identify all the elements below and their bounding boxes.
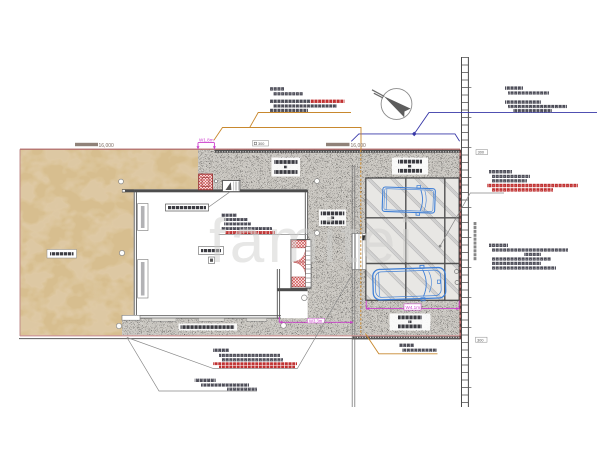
svg-text:300: 300 [477,338,483,342]
svg-text:W3.3m: W3.3m [309,318,323,323]
svg-text:16,000: 16,000 [351,143,367,149]
svg-text:300: 300 [478,151,484,155]
svg-text:16,000: 16,000 [99,143,115,149]
svg-text:W1.8m: W1.8m [199,138,214,143]
svg-text:300: 300 [258,142,264,146]
svg-text:W4.1m: W4.1m [406,305,421,310]
svg-text:famitei: famitei [209,207,416,276]
